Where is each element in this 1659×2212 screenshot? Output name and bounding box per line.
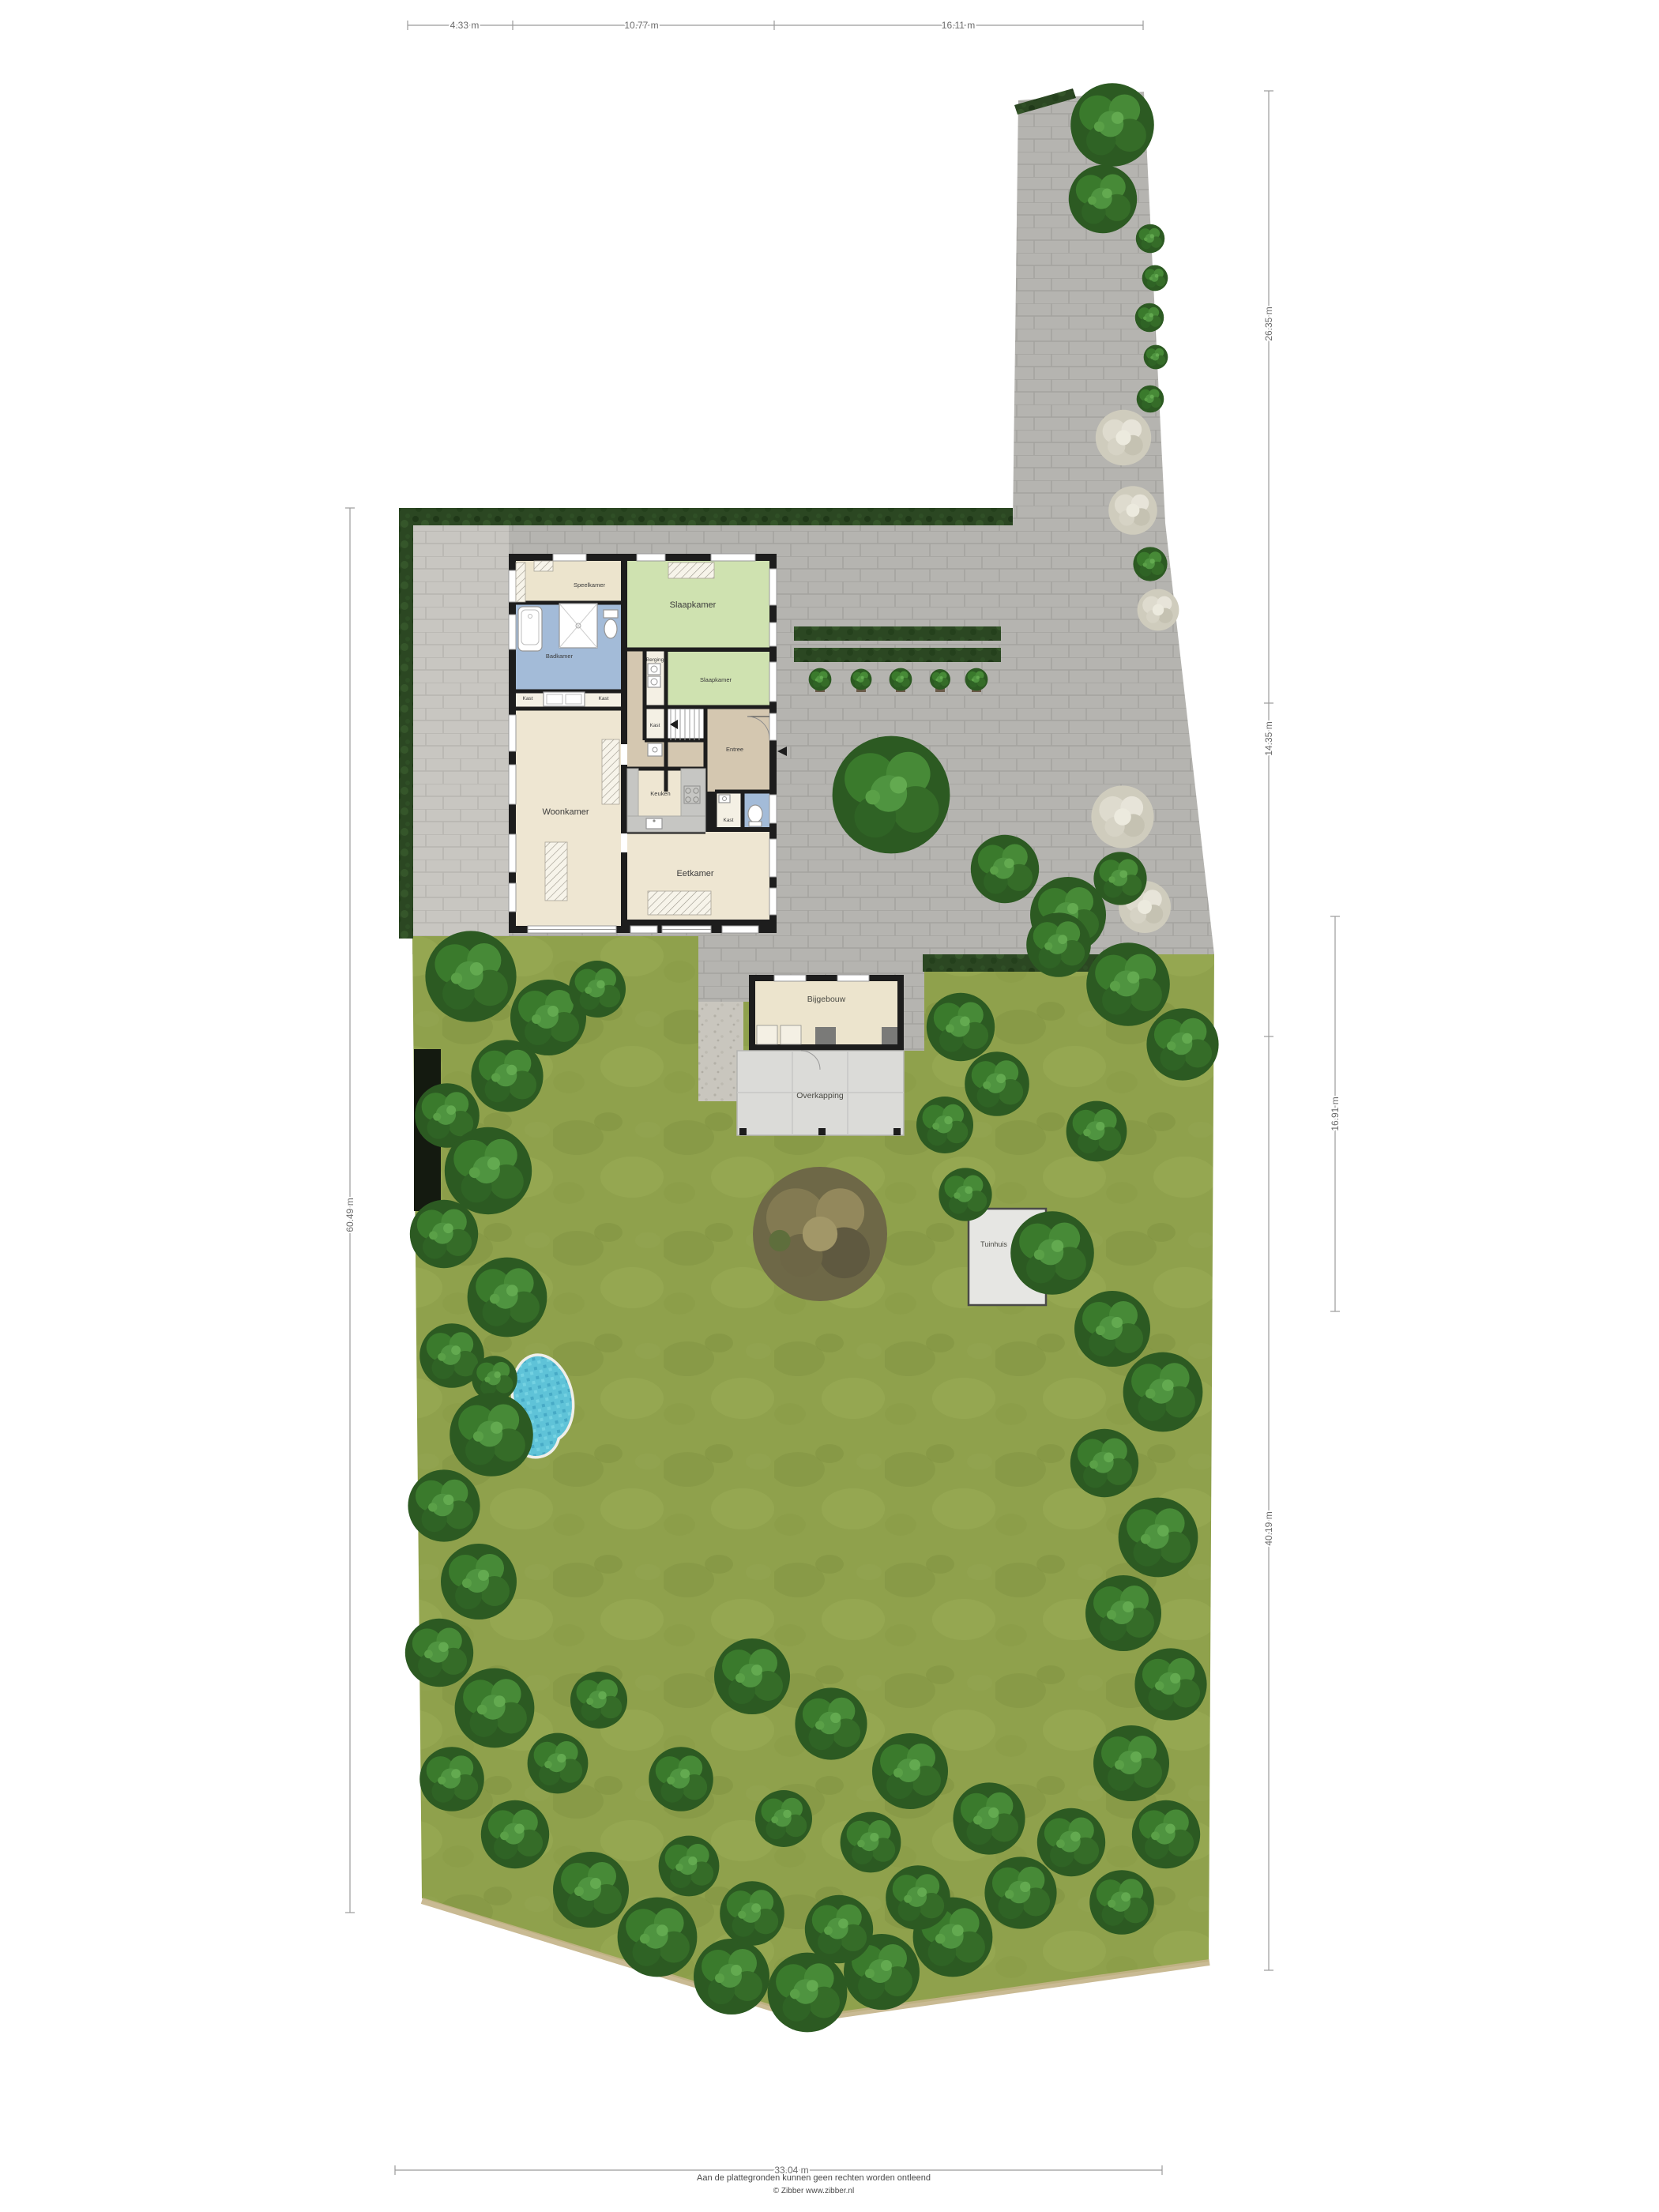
- tree: [1070, 1429, 1138, 1497]
- tree: [1146, 1008, 1218, 1080]
- tree: [1070, 83, 1154, 167]
- room-speelkamer: [516, 561, 621, 603]
- shrub: [1142, 265, 1168, 292]
- outbuilding: Bijgebouw Overkapping: [737, 975, 904, 1135]
- room-label-speelkamer: Speelkamer: [574, 581, 606, 589]
- label-bijgebouw: Bijgebouw: [807, 995, 846, 1004]
- dim-right-1: 26.35 m: [1263, 307, 1274, 340]
- shrub: [809, 668, 832, 691]
- tree: [805, 1895, 873, 1963]
- shrub: [1144, 345, 1168, 370]
- side-terrace: [413, 525, 509, 954]
- tree: [768, 1953, 848, 2033]
- shrub: [851, 669, 872, 690]
- shrub: [1137, 386, 1164, 413]
- tree: [445, 1127, 532, 1214]
- tree: [916, 1097, 973, 1153]
- dim-top-3: 16.11 m: [942, 20, 975, 31]
- tree: [965, 1051, 1029, 1116]
- tree: [425, 931, 516, 1021]
- tree: [553, 1852, 629, 1928]
- dim-right-4: 40.19 m: [1263, 1511, 1274, 1545]
- tree: [984, 1856, 1056, 1928]
- tree: [927, 993, 995, 1061]
- tree: [1037, 1808, 1105, 1876]
- closet-label-3: Kast: [649, 723, 660, 728]
- hall-sink: [648, 743, 662, 756]
- room-label-keuken: Keuken: [650, 790, 670, 797]
- tree: [1119, 1498, 1198, 1578]
- tree: [569, 961, 626, 1018]
- dim-top-1: 4.33 m: [450, 20, 480, 31]
- label-overkapping: Overkapping: [796, 1091, 844, 1100]
- tree: [1093, 852, 1146, 905]
- tree: [714, 1638, 790, 1714]
- tree: [1093, 1725, 1169, 1801]
- site-plan-page: Speelkamer Badkamer Slaapkamer Slaapkame…: [0, 0, 1659, 2212]
- footer-disclaimer: Aan de plattegronden kunnen geen rechten…: [697, 2173, 931, 2183]
- hedge-row-1: [794, 626, 1001, 641]
- tree: [471, 1040, 543, 1112]
- double-washbasin: [544, 692, 585, 706]
- tree: [405, 1619, 473, 1687]
- tree: [455, 1668, 535, 1748]
- tree: [450, 1393, 533, 1477]
- tree: [720, 1881, 784, 1946]
- tree: [1086, 942, 1170, 1026]
- tree: [694, 1939, 769, 2014]
- tree: [1134, 1648, 1206, 1720]
- hedge-left: [399, 508, 413, 939]
- shrub: [1135, 303, 1164, 332]
- tree: [419, 1747, 484, 1811]
- closet-berging: [645, 690, 666, 707]
- flowering-tree: [1096, 410, 1151, 465]
- toilet-badkamer: [604, 610, 618, 638]
- closet-label-4: Kast: [723, 818, 733, 823]
- hedge-top: [399, 508, 1013, 525]
- tree: [649, 1747, 713, 1811]
- tree: [872, 1733, 948, 1809]
- closet-label-1: Kast: [522, 696, 532, 702]
- outbuilding-door-2: [882, 1027, 897, 1044]
- dim-right-3: 16.91 m: [1330, 1097, 1341, 1130]
- tree: [755, 1790, 812, 1847]
- bare-tree: [753, 1167, 887, 1301]
- flowering-tree: [1108, 486, 1157, 535]
- shrub: [930, 669, 950, 690]
- room-label-slaapkamer-2: Slaapkamer: [700, 676, 732, 683]
- room-label-entree: Entree: [726, 746, 743, 753]
- tree: [886, 1865, 950, 1930]
- bathtub: [518, 607, 542, 651]
- flowering-tree: [1138, 589, 1179, 631]
- tree: [939, 1168, 991, 1221]
- tree: [795, 1687, 867, 1759]
- room-label-badkamer: Badkamer: [546, 653, 574, 660]
- label-tuinhuis: Tuinhuis: [980, 1240, 1007, 1248]
- shrub: [1136, 224, 1164, 253]
- tree: [618, 1898, 698, 1977]
- room-label-slaapkamer-1: Slaapkamer: [670, 600, 717, 610]
- tree: [833, 736, 950, 854]
- tree: [659, 1836, 720, 1897]
- tree: [1089, 1870, 1154, 1935]
- tree: [410, 1200, 478, 1268]
- outbuilding-door-1: [815, 1027, 836, 1044]
- tree: [1066, 1101, 1127, 1162]
- tree: [408, 1469, 480, 1541]
- tree: [528, 1733, 589, 1794]
- room-label-eetkamer: Eetkamer: [676, 869, 713, 878]
- hedge-row-2: [794, 648, 1001, 662]
- tree: [1026, 912, 1091, 977]
- room-label-berging: Berging: [646, 657, 664, 663]
- tree: [1085, 1575, 1161, 1651]
- dim-left-1: 60.49 m: [344, 1198, 355, 1232]
- tree: [1123, 1352, 1203, 1432]
- tree: [1010, 1211, 1094, 1295]
- tree: [570, 1672, 627, 1729]
- tree: [1132, 1800, 1200, 1868]
- tree: [1074, 1291, 1150, 1367]
- flowering-tree: [1091, 785, 1153, 848]
- tree: [841, 1812, 901, 1873]
- tree: [468, 1258, 547, 1337]
- dim-top-2: 10.77 m: [624, 20, 658, 31]
- shrub: [1133, 547, 1167, 581]
- tree: [971, 835, 1039, 903]
- shower: [559, 604, 597, 648]
- tree: [953, 1782, 1025, 1854]
- shrub: [890, 668, 912, 691]
- room-label-woonkamer: Woonkamer: [542, 807, 589, 817]
- shrub: [965, 668, 988, 691]
- site-plan: Speelkamer Badkamer Slaapkamer Slaapkame…: [0, 0, 1659, 2212]
- main-house: Speelkamer Badkamer Slaapkamer Slaapkame…: [509, 554, 787, 933]
- tree: [481, 1800, 549, 1868]
- footer-credit: © Zibber www.zibber.nl: [773, 2187, 854, 2195]
- dim-right-2: 14.35 m: [1263, 721, 1274, 755]
- tree: [441, 1544, 517, 1619]
- closet-label-2: Kast: [598, 696, 608, 702]
- tree: [1069, 165, 1137, 233]
